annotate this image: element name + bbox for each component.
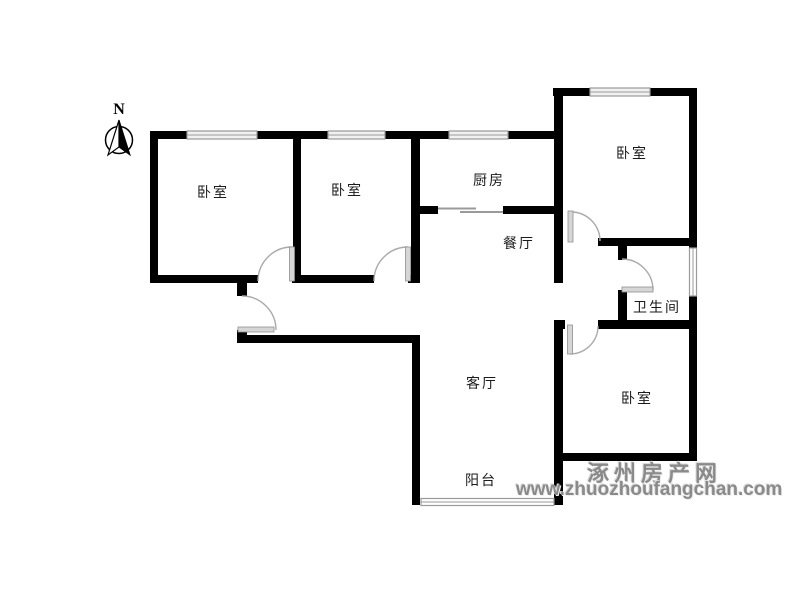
wall-bathroom-divider-b	[618, 290, 627, 322]
room-label-bedroom-ne: 卧室	[616, 145, 648, 161]
wall-bedrooms-bottom-b	[292, 275, 374, 283]
walls	[150, 88, 697, 505]
wall-bathroom-divider-a	[618, 238, 627, 260]
door-bedroom-ne	[568, 211, 600, 242]
window-bedroom-n	[328, 131, 385, 139]
wall-divider-bedroom-dining	[411, 131, 420, 283]
floor-plan-drawing: N 卧室 卧室 厨房 餐厅 卧室 卫生间 卧室 客厅 阳台	[0, 0, 800, 600]
door-bathroom	[622, 259, 653, 292]
room-label-bedroom-nw: 卧室	[197, 184, 229, 200]
wall-central-upper	[554, 88, 563, 283]
wall-central-lower	[554, 322, 563, 505]
compass-icon: N	[106, 101, 133, 155]
compass-needle-right	[119, 120, 130, 155]
door-entry	[238, 296, 276, 332]
floor-plan-page: N 卧室 卧室 厨房 餐厅 卧室 卫生间 卧室 客厅 阳台 涿州房产网 www.…	[0, 0, 800, 600]
wall-right-outer-upper	[689, 88, 697, 248]
wall-kitchen-bottom-b	[503, 206, 562, 214]
room-label-kitchen: 厨房	[473, 172, 505, 188]
room-labels: 卧室 卧室 厨房 餐厅 卧室 卫生间 卧室 客厅 阳台	[197, 145, 681, 488]
wall-left-outer	[150, 131, 158, 283]
wall-kitchen-bottom-a	[420, 206, 438, 214]
wall-hall-south	[237, 335, 420, 343]
room-label-bedroom-n: 卧室	[331, 182, 363, 198]
room-label-dining: 餐厅	[503, 235, 535, 251]
room-label-bedroom-se: 卧室	[621, 390, 653, 406]
wall-hall-west-stub	[237, 281, 247, 296]
room-label-balcony: 阳台	[465, 472, 497, 488]
kitchen-pass-opening	[438, 209, 503, 213]
window-bathroom	[690, 248, 697, 296]
room-label-living: 客厅	[466, 375, 498, 391]
door-bedroom-se	[568, 325, 599, 354]
window-bedroom-nw	[187, 131, 257, 139]
window-kitchen	[449, 131, 508, 139]
compass-north-label: N	[113, 101, 125, 118]
wall-right-outer-lower	[689, 296, 697, 461]
wall-living-west	[412, 335, 420, 505]
door-bedroom-nw	[258, 247, 295, 281]
compass-needle-left	[108, 120, 119, 155]
wall-bathroom-south-a	[554, 320, 565, 329]
wall-bathroom-south-b	[598, 320, 697, 329]
watermark-site-url: www.zhuozhoufangchan.com	[516, 479, 782, 501]
room-label-bathroom: 卫生间	[633, 299, 681, 315]
door-bedroom-n	[374, 247, 411, 281]
wall-bedroom-ne-south	[598, 238, 697, 246]
window-bedroom-ne	[590, 88, 650, 96]
